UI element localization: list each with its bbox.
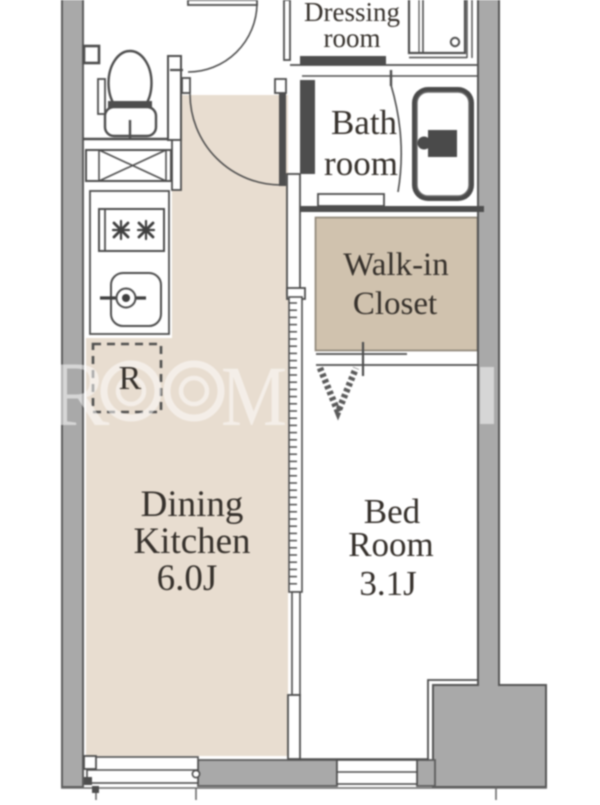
svg-text:Kitchen: Kitchen [133,521,250,562]
svg-text:R: R [119,360,142,397]
svg-text:Walk-in: Walk-in [343,247,448,283]
svg-text:Closet: Closet [353,286,437,322]
svg-text:Bath: Bath [331,103,398,142]
svg-text:room: room [324,144,398,183]
svg-text:6.0J: 6.0J [157,558,218,599]
svg-text:Room: Room [348,525,434,564]
svg-text:room: room [324,23,381,53]
svg-text:M: M [221,348,287,444]
svg-text:Dining: Dining [141,484,244,525]
svg-text:3.1J: 3.1J [359,564,416,603]
